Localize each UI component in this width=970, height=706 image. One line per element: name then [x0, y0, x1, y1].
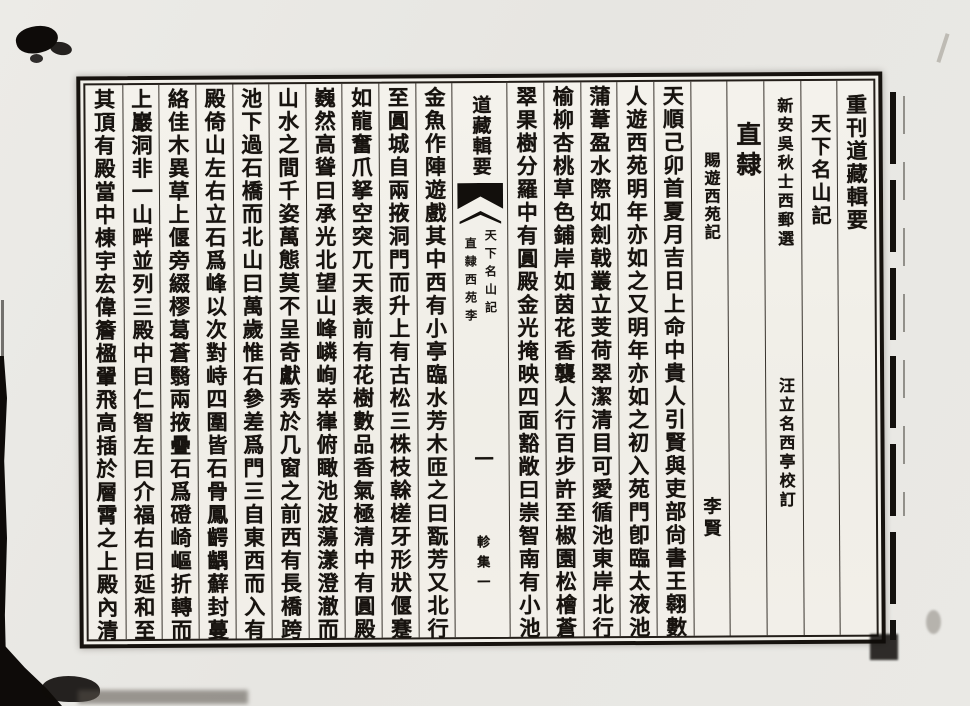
piece-title: 賜遊西苑記	[697, 152, 722, 242]
fold-column: 道藏輯要 天下名山記 直隸西苑李 一 軫集一	[452, 83, 510, 637]
body-text: 上巖洞非一山畔並列三殿中曰仁智左曰介福右曰延和至	[126, 88, 159, 643]
scan-page-edge-line	[890, 92, 896, 640]
body-text: 天順己卯首夏月吉日上命中貴人引賢與吏部尙書王翱數	[657, 85, 690, 640]
body-column: 絡佳木異草上偃旁綴樛葛蒼翳兩掖疊石爲磴崎嶇折轉而	[159, 85, 199, 639]
fishtail-mark-icon	[457, 183, 503, 209]
page-sheet: 重刊道藏輯要 天下名山記 新安吳秋士西郵選 汪立名西亭校訂 直隸 賜遊西苑記 李…	[76, 72, 885, 649]
piece-title-column: 賜遊西苑記 李賢	[690, 81, 730, 635]
region-label: 直隸	[728, 121, 764, 181]
body-text: 人遊西苑明年亦如之又明年亦如之初入苑門卽臨太液池	[621, 85, 654, 640]
body-text: 金魚作陣遊戲其中西有小亭臨水芳木匝之曰翫芳又北行	[419, 86, 452, 641]
fold-banner: 道藏輯要	[466, 95, 494, 177]
fold-small-left: 直隸西苑李	[462, 229, 480, 359]
body-column: 其頂有殿當中棟宇宏偉簷楹翬飛高插於層霄之上殿內清	[85, 85, 125, 639]
series-title-column: 重刊道藏輯要	[837, 81, 877, 635]
scan-blot-topleft	[30, 54, 43, 63]
body-text: 蒲葦盈水際如劍戟叢立芰荷翠潔清目可愛循池東岸北行	[584, 85, 617, 640]
folio-number: 一	[468, 449, 495, 468]
region-column: 直隸	[727, 81, 767, 635]
body-column: 上巖洞非一山畔並列三殿中曰仁智左曰介福右曰延和至	[122, 85, 162, 639]
body-text: 池下過石橋而北山曰萬歲惟石參差爲門三自東西而入有	[236, 87, 269, 642]
collator-credit: 汪立名西亭校訂	[772, 377, 797, 510]
scan-background: 重刊道藏輯要 天下名山記 新安吳秋士西郵選 汪立名西亭校訂 直隸 賜遊西苑記 李…	[0, 0, 970, 706]
fishtail-chevron-icon	[460, 211, 502, 224]
body-column: 蒲葦盈水際如劍戟叢立芰荷翠潔清目可愛循池東岸北行	[580, 82, 620, 636]
credits-column: 新安吳秋士西郵選 汪立名西亭校訂	[763, 81, 803, 635]
author-name: 李賢	[698, 497, 724, 541]
body-column: 如龍奮爪拏空突兀天表前有花樹數品香氣極清中有圓殿	[342, 84, 382, 638]
body-column: 翠果樹分羅中有圓殿金光掩映四面豁敞曰崇智南有小池	[507, 83, 547, 637]
body-column: 山水之間千姿萬態莫不呈奇獻秀於几窗之前西有長橋跨	[268, 84, 308, 638]
body-column: 巍然高聳曰承光北望山峰嶙峋崒嵂俯瞰池波蕩漾澄澈而	[305, 84, 345, 638]
body-text: 山水之間千姿萬態莫不呈奇獻秀於几窗之前西有長橋跨	[272, 87, 305, 642]
body-column: 至圓城自兩掖洞門而升上有古松三株枝榦槎牙形狀偃蹇	[378, 83, 418, 637]
work-title: 天下名山記	[805, 113, 835, 228]
body-text: 巍然高聳曰承光北望山峰嶙峋崒嵂俯瞰池波蕩漾澄澈而	[309, 87, 342, 642]
scan-page-edge-line	[903, 96, 905, 516]
scan-blot-topleft	[49, 40, 73, 57]
series-title: 重刊道藏輯要	[841, 94, 872, 232]
scan-mark-topright	[936, 33, 949, 63]
page-frame: 重刊道藏輯要 天下名山記 新安吳秋士西郵選 汪立名西亭校訂 直隸 賜遊西苑記 李…	[83, 79, 878, 642]
body-text: 榆柳杏桃草色鋪岸如茵花香襲人行百步許至椒園松檜蒼	[547, 85, 580, 640]
body-text: 其頂有殿當中棟宇宏偉簷楹翬飛高插於層霄之上殿內清	[89, 88, 122, 643]
body-column: 榆柳杏桃草色鋪岸如茵花香襲人行百步許至椒園松檜蒼	[543, 82, 583, 636]
body-column: 池下過石橋而北山曰萬歲惟石參差爲門三自東西而入有	[232, 84, 272, 638]
body-text: 至圓城自兩掖洞門而升上有古松三株枝榦槎牙形狀偃蹇	[382, 86, 415, 641]
body-column: 人遊西苑明年亦如之又明年亦如之初入苑門卽臨太液池	[617, 82, 657, 636]
body-column: 金魚作陣遊戲其中西有小亭臨水芳木匝之曰翫芳又北行	[415, 83, 455, 637]
scan-smudge-bottom	[78, 690, 248, 704]
body-text: 殿倚山左右立石爲峰以次對峙四圍皆石骨鳳齶齵蘚封蔓	[199, 88, 232, 643]
work-title-column: 天下名山記	[800, 81, 840, 635]
compiler-credit: 新安吳秋士西郵選	[770, 97, 795, 249]
body-text: 如龍奮爪拏空突兀天表前有花樹數品香氣極清中有圓殿	[346, 87, 379, 642]
body-text: 翠果樹分羅中有圓殿金光掩映四面豁敞曰崇智南有小池	[511, 86, 544, 641]
body-column: 天順己卯首夏月吉日上命中貴人引賢與吏部尙書王翱數	[653, 82, 693, 636]
fold-small-right: 天下名山記	[482, 229, 500, 359]
scan-blot-right	[926, 610, 941, 634]
body-text: 絡佳木異草上偃旁綴樛葛蒼翳兩掖疊石爲磴崎嶇折轉而	[162, 88, 195, 643]
body-column: 殿倚山左右立石爲峰以次對峙四圍皆石骨鳳齶齵蘚封蔓	[195, 85, 235, 639]
fold-small-titles: 天下名山記 直隸西苑李	[454, 229, 509, 359]
collection-mark: 軫集一	[473, 535, 492, 595]
